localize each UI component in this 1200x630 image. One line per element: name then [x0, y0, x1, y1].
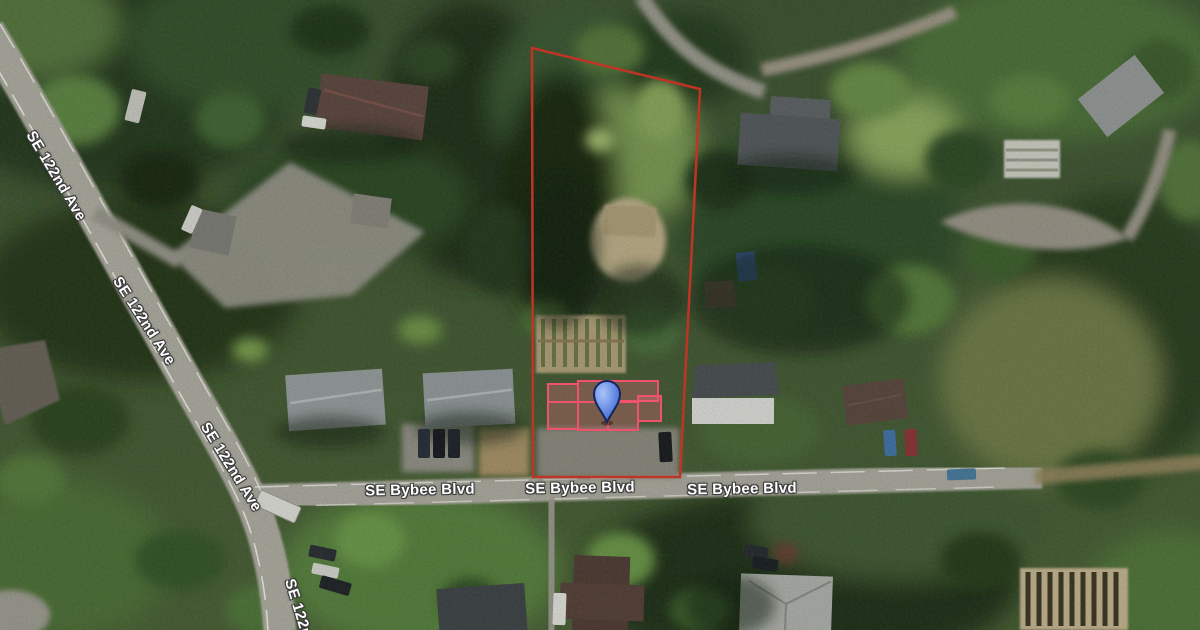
building-footprint: [638, 396, 661, 421]
building-footprint: [548, 402, 578, 429]
image-grain: [0, 0, 1200, 630]
satellite-imagery: [0, 0, 1200, 630]
satellite-map[interactable]: SE 122nd Ave SE 122nd Ave SE 122nd Ave S…: [0, 0, 1200, 630]
building-footprint: [548, 384, 578, 402]
